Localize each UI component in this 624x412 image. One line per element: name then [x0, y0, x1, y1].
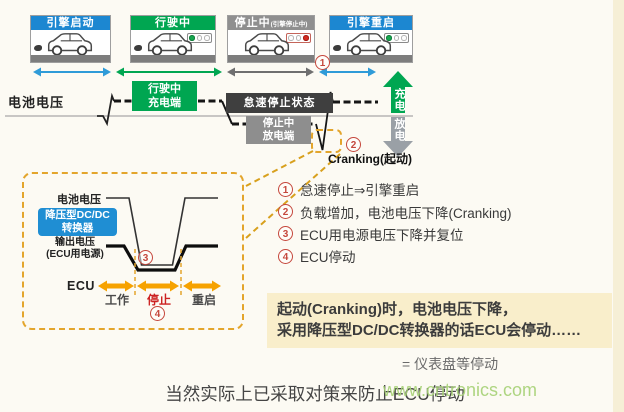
marker-3: 3	[138, 250, 153, 265]
marker-1: 1	[315, 55, 330, 70]
scene-engine-start: 引擎启动	[30, 15, 111, 63]
traffic-dot	[197, 35, 203, 41]
highlight-line2: 采用降压型DC/DC转换器的话ECU会停动……	[277, 321, 602, 342]
note-number: 2	[278, 204, 293, 219]
charge-arrow-label: 充电	[391, 88, 407, 112]
ecu-label: ECU	[67, 279, 95, 293]
zoom-source-box	[311, 129, 342, 153]
phase-stop-discharging-box: 停止中 放电端	[246, 116, 311, 144]
scene-title: 行驶中	[131, 16, 215, 30]
exhaust-puff-icon	[134, 45, 142, 51]
exhaust-puff-icon	[34, 45, 42, 51]
scene-body	[31, 30, 110, 62]
phase-arrow-restart	[319, 68, 376, 77]
scene-title-text: 行驶中	[155, 17, 191, 29]
note-number: 3	[278, 226, 293, 241]
highlight-line1: 起动(Cranking)时，电池电压下降，	[277, 300, 602, 321]
scene-engine-restart: 引擎重启	[329, 15, 413, 63]
notes-list: 1 怠速停止⇒引擎重启 2 负载增加，电池电压下降(Cranking) 3 EC…	[278, 178, 512, 268]
car-icon	[45, 31, 95, 57]
note-text: ECU停动	[300, 246, 356, 266]
scene-body	[330, 30, 412, 62]
output-voltage-label: 输出电压 (ECU用电源)	[42, 237, 108, 260]
note-item: 2 负载增加，电池电压下降(Cranking)	[278, 200, 512, 222]
scene-title: 停止中(引擎停止中)	[228, 16, 314, 30]
traffic-dot	[303, 35, 309, 41]
phase-arrow-stopped	[227, 68, 314, 77]
phase-arrow-driving	[116, 68, 222, 77]
phase-arrow-engine-start	[33, 68, 111, 77]
cranking-label: Cranking(起动)	[328, 150, 412, 167]
discharge-arrow-label: 放电	[391, 118, 407, 142]
equals-note: = 仪表盘等停动	[402, 354, 498, 374]
traffic-dot	[204, 35, 210, 41]
note-text: 负载增加，电池电压下降(Cranking)	[300, 202, 512, 222]
ecu-phase-work-label: 工作	[102, 291, 132, 308]
note-item: 3 ECU用电源电压下降并复位	[278, 223, 512, 245]
note-text: ECU用电源电压下降并复位	[300, 224, 464, 244]
ecu-phase-restart-label: 重启	[189, 291, 219, 308]
callout-battery-voltage-label: 电池电压	[57, 191, 101, 207]
watermark: www.cntronics.com	[383, 380, 537, 401]
battery-voltage-label: 电池电压	[8, 92, 64, 111]
dcdc-converter-box: 降压型DC/DC 转换器	[38, 208, 117, 236]
road	[330, 55, 412, 62]
scene-stopped: 停止中(引擎停止中)	[227, 15, 315, 63]
highlight-note: 起动(Cranking)时，电池电压下降， 采用降压型DC/DC转换器的话ECU…	[267, 293, 612, 348]
diagram-canvas: 引擎启动 行驶中	[0, 0, 624, 412]
scene-title: 引擎重启	[330, 16, 412, 30]
marker-4: 4	[150, 306, 165, 321]
car-icon	[145, 31, 195, 57]
scene-title-text: 引擎重启	[347, 17, 395, 29]
exhaust-puff-icon	[333, 45, 341, 51]
road	[131, 55, 215, 62]
road	[228, 55, 314, 62]
note-number: 1	[278, 182, 293, 197]
scene-title-text: 引擎启动	[47, 17, 95, 29]
scene-title-small-text: (引擎停止中)	[271, 21, 308, 28]
scene-body	[131, 30, 215, 62]
car-icon	[344, 31, 394, 57]
note-item: 4 ECU停动	[278, 245, 512, 267]
traffic-dot	[401, 35, 407, 41]
road	[31, 55, 110, 62]
note-number: 4	[278, 249, 293, 264]
note-text: 怠速停止⇒引擎重启	[300, 179, 419, 199]
scene-body	[228, 30, 314, 62]
phase-idle-stop-box: 怠速停止状态	[226, 93, 333, 113]
phase-driving-charging-box: 行驶中 充电端	[132, 81, 197, 111]
traffic-dot	[296, 35, 302, 41]
scene-title: 引擎启动	[31, 16, 110, 30]
scene-title-text: 停止中	[235, 17, 271, 29]
note-item: 1 怠速停止⇒引擎重启	[278, 178, 512, 200]
marker-2: 2	[346, 137, 361, 152]
scene-driving: 行驶中	[130, 15, 216, 63]
car-icon	[242, 31, 292, 57]
traffic-dot	[394, 35, 400, 41]
